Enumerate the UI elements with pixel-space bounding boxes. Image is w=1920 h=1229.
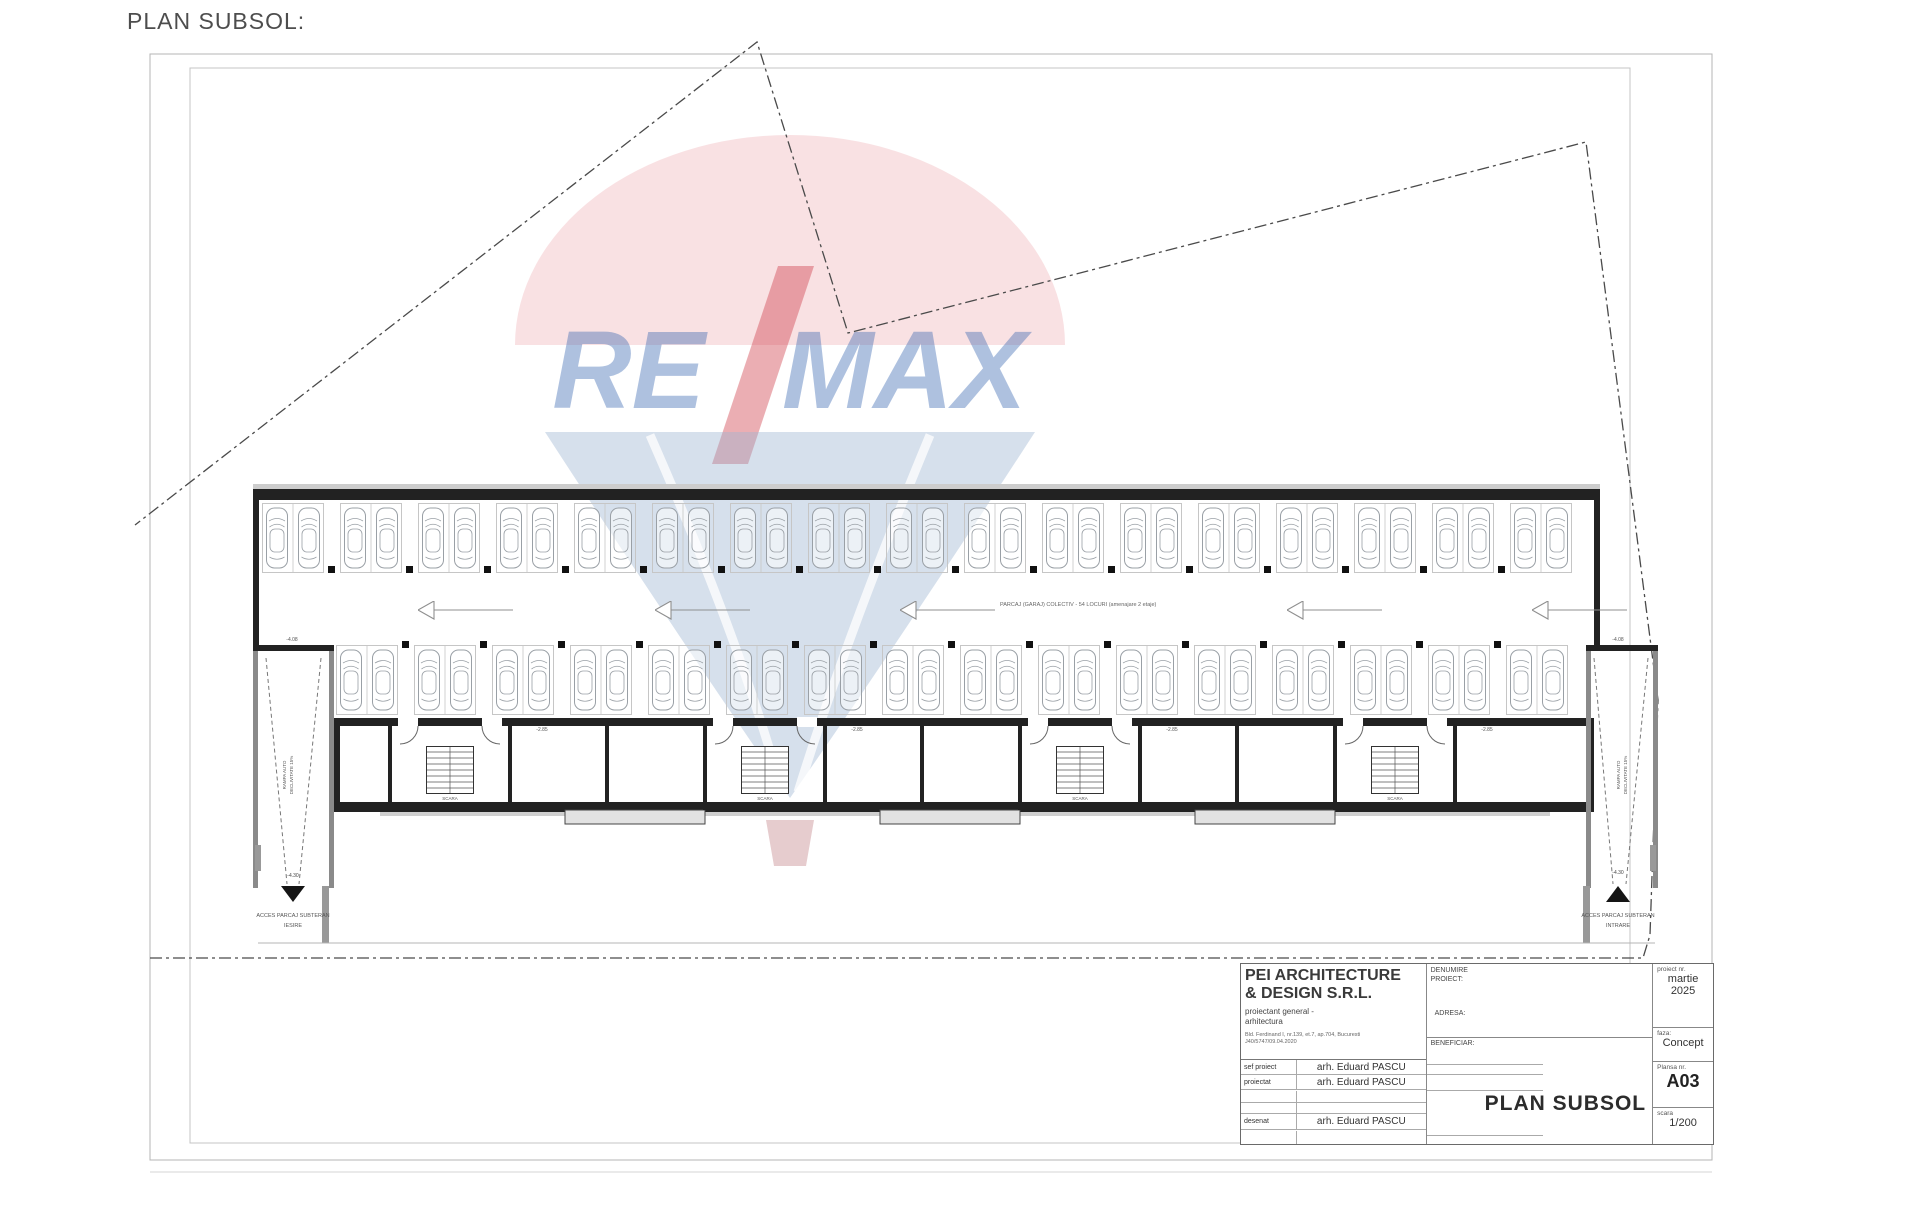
row-value [1297,1131,1426,1144]
title-block: PEI ARCHITECTURE & DESIGN S.R.L. proiect… [1240,963,1714,1145]
facade-notches [565,810,1335,824]
ramp-label: DECLIVITATE 15% [1623,756,1628,795]
firm-address: J40/5747/09.04.2020 [1245,1039,1422,1047]
stair-core: SCARA -2.85 [1018,717,1178,810]
row-value [1297,1091,1426,1103]
row-label: sef proiect [1241,1060,1297,1075]
entry-arrow-icon [1606,886,1630,902]
project-no-label: proiect nr. [1654,966,1712,973]
row-value: arh. Eduard PASCU [1297,1060,1426,1075]
ramp-elevation: -4.08 [286,637,298,643]
access-entry-marker: -4.30 ACCES PARCAJ SUBTERAN INTRARE [1581,870,1654,929]
ramp-label: RAMPA AUTO [282,760,287,789]
watermark-re: RE [552,309,708,432]
phase-value: Concept [1654,1037,1712,1049]
stair-label: SCARA [1387,796,1403,801]
unit-elevation: -2.85 [1166,727,1178,733]
unit-elevation: -2.85 [536,727,548,733]
ramp-label: DECLIVITATE 15% [289,756,294,795]
unit-elevation: -2.85 [851,727,863,733]
remax-watermark: RE MAX [515,135,1065,866]
access-exit-marker: -4.30 ACCES PARCAJ SUBTERAN IESIRE [256,873,329,929]
access-label: INTRARE [1606,923,1630,929]
access-elevation: -4.30 [1612,870,1624,876]
firm-role: proiectant general - [1245,1007,1422,1017]
scale-value: 1/200 [1654,1117,1712,1129]
stair-core: SCARA -2.85 [388,717,548,810]
firm-role: arhitectura [1245,1017,1422,1027]
exit-arrow-icon [281,886,305,902]
stair-label: SCARA [1072,796,1088,801]
parking-row-top [263,504,1572,573]
parking-row-bottom [337,646,1568,715]
sheet-number: A03 [1654,1071,1712,1092]
title-block-firm-column: PEI ARCHITECTURE & DESIGN S.R.L. proiect… [1241,964,1427,1144]
aisle-label: PARCAJ (GARAJ) COLECTIV - 54 LOCURI (ame… [1000,602,1157,608]
phase-label: faza: [1654,1030,1712,1037]
row-label [1241,1091,1297,1103]
row-label: desenat [1241,1114,1297,1130]
row-value: arh. Eduard PASCU [1297,1075,1426,1090]
firm-name: PEI ARCHITECTURE [1245,967,1422,985]
access-label: ACCES PARCAJ SUBTERAN [256,913,329,919]
sheet-no-label: Plansa nr. [1654,1064,1712,1071]
stair-label: SCARA [442,796,458,801]
row-value [1297,1103,1426,1114]
beneficiary-label: BENEFICIAR: [1431,1040,1475,1047]
row-label: proiectat [1241,1075,1297,1090]
access-label: ACCES PARCAJ SUBTERAN [1581,913,1654,919]
stair-cores: SCARA -2.85 SCARA -2.85 SCARA -2.85 [388,717,1493,810]
stair-label: SCARA [757,796,773,801]
watermark-basket [766,820,814,866]
project-label: DENUMIRE PROIECT: [1431,967,1489,985]
title-block-project-column: DENUMIRE PROIECT: ADRESA: BENEFICIAR: PL… [1427,964,1654,1144]
title-block-meta-column: proiect nr. martie 2025 faza: Concept Pl… [1653,964,1713,1144]
scale-label: scara [1654,1110,1712,1117]
sheet-title: PLAN SUBSOL [1485,1092,1647,1116]
page: { "page": { "heading": "PLAN SUBSOL:" },… [0,0,1920,1229]
firm-name: & DESIGN S.R.L. [1245,985,1422,1003]
project-date: martie 2025 [1654,973,1712,997]
signature-rows: sef proiect arh. Eduard PASCU proiectat … [1241,1059,1426,1144]
firm-address: Bld. Ferdinand I, nr.139, et.7, ap.704, … [1245,1032,1422,1040]
unit-elevation: -2.85 [1481,727,1493,733]
row-label [1241,1131,1297,1144]
stair-core: SCARA -2.85 [1333,717,1493,810]
watermark-max: MAX [782,309,1032,432]
row-value: arh. Eduard PASCU [1297,1114,1426,1130]
address-label: ADRESA: [1435,1010,1466,1017]
row-label [1241,1103,1297,1114]
access-elevation: -4.30 [287,873,299,879]
ramp-label: RAMPA AUTO [1616,760,1621,789]
access-label: IESIRE [284,923,302,929]
ramp-elevation: -4.08 [1612,637,1624,643]
